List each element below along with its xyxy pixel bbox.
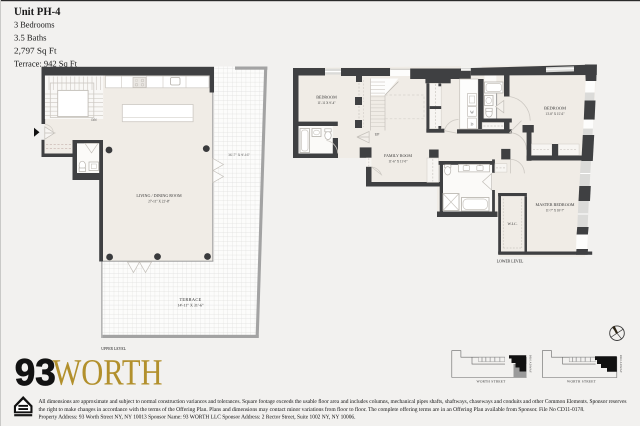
svg-text:WORTH STREET: WORTH STREET — [476, 380, 506, 384]
svg-text:BEDROOM: BEDROOM — [544, 106, 566, 111]
svg-text:DN: DN — [91, 118, 97, 122]
svg-text:14'-11" X 31'-6": 14'-11" X 31'-6" — [177, 303, 203, 308]
svg-text:LIVING / DINING ROOM: LIVING / DINING ROOM — [136, 193, 181, 198]
svg-text:11'-7" X 18'-7": 11'-7" X 18'-7" — [546, 208, 565, 212]
svg-text:36'-7" X 9'-16": 36'-7" X 9'-16" — [228, 153, 250, 157]
svg-text:BROADWAY: BROADWAY — [528, 355, 531, 373]
svg-text:TERRACE: TERRACE — [179, 297, 201, 302]
svg-text:W: W — [470, 110, 474, 115]
svg-text:13'-8" X 15'-6": 13'-8" X 15'-6" — [546, 112, 565, 116]
svg-text:93: 93 — [15, 351, 56, 393]
svg-text:the right to make changes in a: the right to make changes in accordance … — [39, 406, 586, 413]
svg-text:BEDROOM: BEDROOM — [316, 95, 337, 100]
svg-text:Unit PH-4: Unit PH-4 — [14, 6, 61, 18]
svg-text:WORTH STREET: WORTH STREET — [567, 380, 597, 384]
svg-text:All dimensions are approximate: All dimensions are approximate and subje… — [39, 398, 628, 405]
svg-text:UPPER LEVEL: UPPER LEVEL — [101, 346, 126, 351]
svg-text:D: D — [471, 121, 474, 126]
svg-text:11'-6" X 11'-0": 11'-6" X 11'-0" — [389, 159, 408, 163]
svg-text:BROADWAY: BROADWAY — [619, 355, 622, 373]
svg-text:Property Address: 93 Worth Str: Property Address: 93 Worth Street NY, NY… — [39, 413, 357, 420]
svg-text:UP: UP — [375, 133, 380, 137]
svg-text:LOWER LEVEL: LOWER LEVEL — [497, 259, 524, 264]
svg-text:11'-11 X 9'-4": 11'-11 X 9'-4" — [318, 101, 336, 105]
svg-text:3 Bedrooms: 3 Bedrooms — [14, 20, 55, 30]
svg-text:27'-11" X 22'-8": 27'-11" X 22'-8" — [148, 198, 170, 203]
svg-text:2,797 Sq Ft: 2,797 Sq Ft — [14, 46, 57, 56]
svg-text:W.I.C.: W.I.C. — [508, 222, 518, 226]
svg-text:3.5 Baths: 3.5 Baths — [14, 33, 47, 43]
svg-text:WORTH: WORTH — [53, 353, 163, 394]
svg-text:FAMILY ROOM: FAMILY ROOM — [384, 153, 412, 158]
svg-text:MASTER BEDROOM: MASTER BEDROOM — [536, 202, 575, 207]
